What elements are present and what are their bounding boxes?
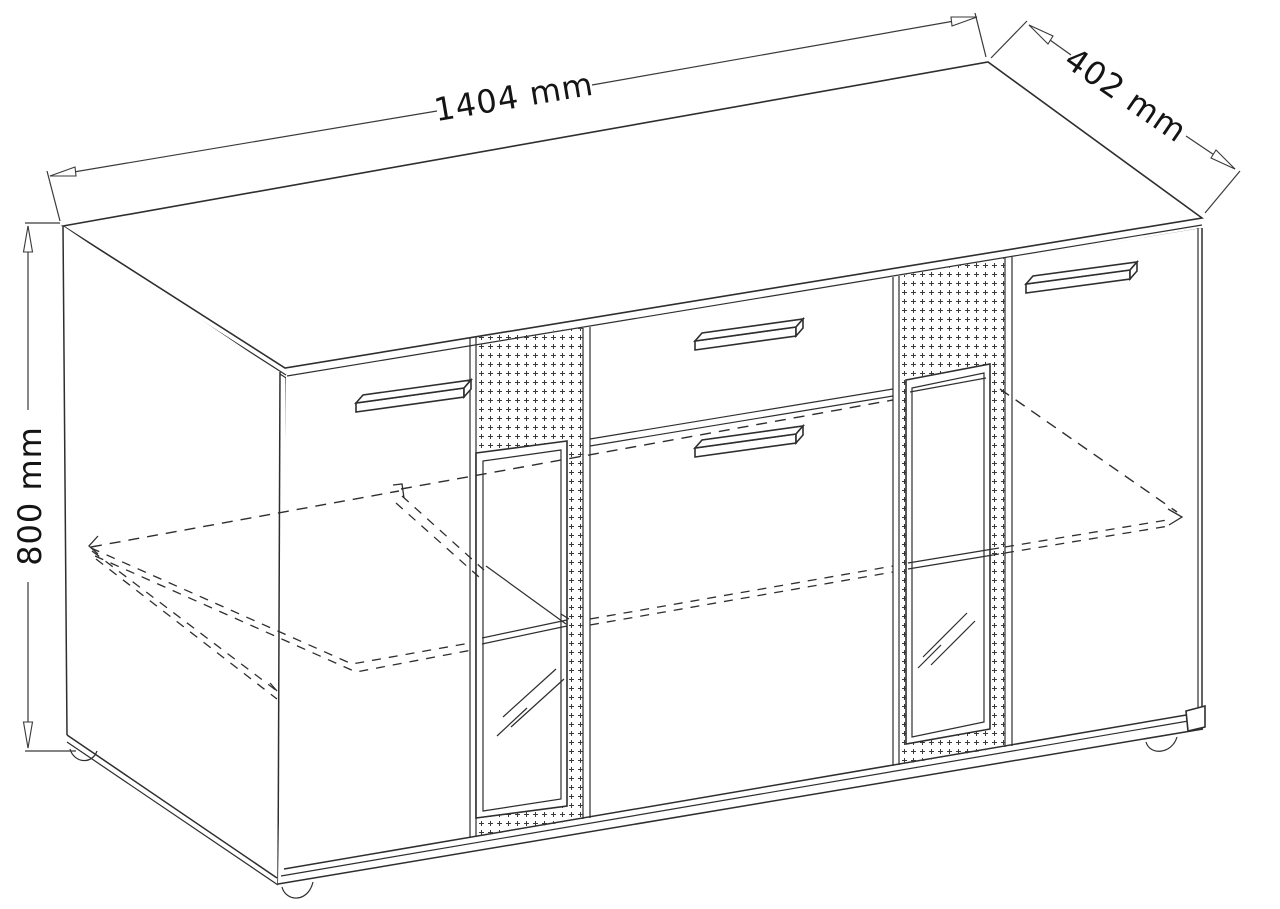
dimension-arrow-icon: [951, 17, 977, 26]
dimension-arrow-icon: [1029, 25, 1053, 44]
cabinet-drawing: [63, 62, 1205, 898]
width-dimension-label: 1404 mm: [431, 65, 596, 129]
plinth-end-cap: [1186, 706, 1205, 731]
dimension-arrow-icon: [24, 226, 33, 252]
diagram-canvas: 1404 mm 402 mm 800 mm: [0, 0, 1280, 909]
foot: [1146, 737, 1177, 751]
height-dimension-label: 800 mm: [11, 426, 49, 566]
dimension-arrow-icon: [50, 167, 76, 176]
left-glass-window: [476, 441, 567, 818]
right-glass-window: [906, 364, 999, 744]
dimension-arrow-icon: [24, 722, 33, 748]
furniture-dimension-drawing: 1404 mm 402 mm 800 mm: [0, 0, 1280, 909]
foot: [282, 882, 313, 898]
dimension-arrow-icon: [1211, 150, 1235, 169]
